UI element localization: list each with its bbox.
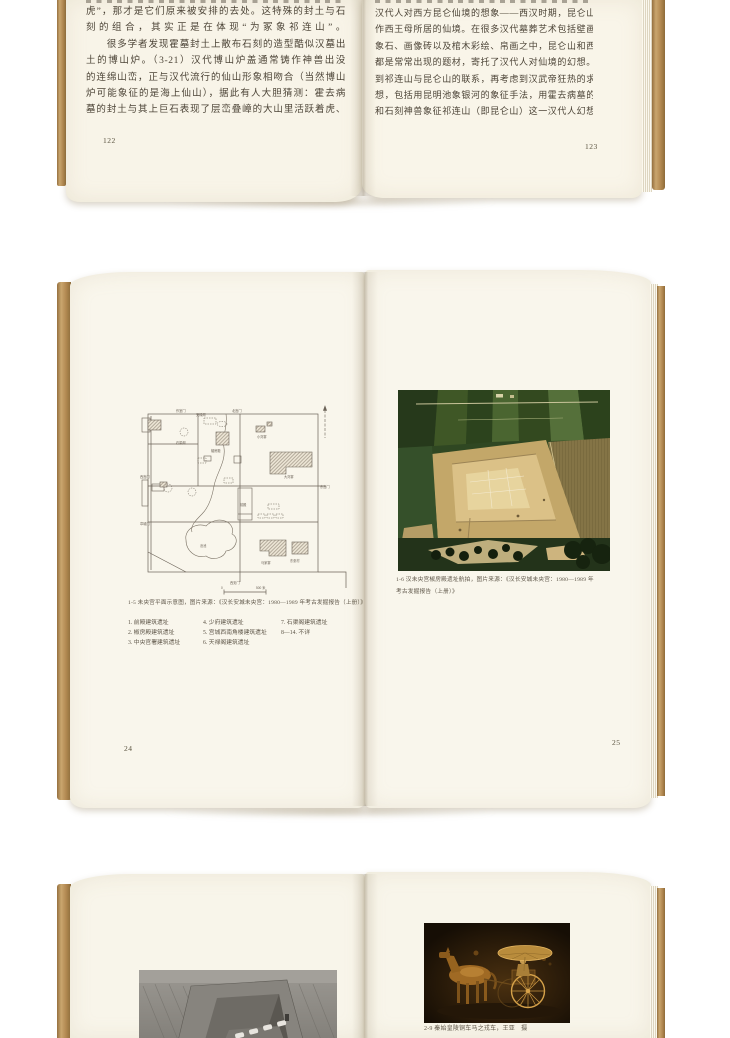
legend-item: 6. 天禄阁建筑遗址 bbox=[203, 638, 267, 648]
site-label: 椒房殿 bbox=[211, 448, 221, 453]
figure-caption-line2: 考古发掘报告（上册）》 bbox=[396, 587, 458, 598]
excavation-photo-figure bbox=[139, 970, 337, 1038]
text-line: 和石刻神兽象征祁连山（即昆仑山）这一汉代人幻想中的 bbox=[375, 103, 593, 119]
legend-item: 8—14. 不详 bbox=[281, 628, 327, 638]
legend-item: 2. 椒房殿建筑遗址 bbox=[128, 628, 180, 638]
text-line: 虎”，那才是它们原来被安排的去处。这特殊的封土与石 bbox=[86, 4, 346, 20]
legend-item: 7. 石渠阁建筑遗址 bbox=[281, 618, 327, 628]
gate-label: 作室门 bbox=[176, 408, 186, 413]
text-line: 的连绵山峦，正与汉代流行的仙山形象相吻合（当然博山 bbox=[86, 70, 346, 86]
page-bottom-right: 2-9 秦始皇陵铜车马之戎车，王亚 摄 bbox=[365, 872, 651, 1038]
page-24: 作室门 北宫门 西宫门 章城门 东宫门 西安门 石渠阁 天禄阁 椒房殿 小刘寨 … bbox=[70, 272, 365, 808]
ground bbox=[437, 1003, 561, 1019]
cover-edge-left bbox=[57, 0, 66, 186]
site-label: 前殿 bbox=[240, 502, 247, 507]
upper-fields bbox=[398, 390, 610, 448]
building-blocks bbox=[142, 418, 312, 556]
site-label: 石渠阁 bbox=[176, 440, 186, 445]
bottom-tree-row bbox=[398, 538, 610, 571]
site-label: 大刘寨 bbox=[284, 474, 294, 479]
figure-caption-line1: 1-6 汉未央宫椒房殿遗址航拍，图片来源：《汉长安城未央宫：1980—1989 … bbox=[396, 575, 594, 586]
text-line: 都是常常出现的题材，寄托了汉代人对仙境的幻想。考虑 bbox=[375, 54, 593, 70]
site-label: 天禄阁 bbox=[196, 412, 206, 417]
body-text-column: 虎”，那才是它们原来被安排的去处。这特殊的封土与石 刻的组合，其实正是在体现“为… bbox=[86, 4, 346, 119]
body-text-column: 汉代人对西方昆仑仙境的想象——西汉时期，昆仑山被看 作西王母所居的仙境。在很多汉… bbox=[375, 5, 593, 120]
aerial-photo-figure bbox=[398, 390, 610, 571]
book-spread-middle: 作室门 北宫门 西宫门 章城门 东宫门 西安门 石渠阁 天禄阁 椒房殿 小刘寨 … bbox=[0, 260, 730, 830]
cover-edge-right bbox=[657, 888, 665, 1038]
site-label: 东张村 bbox=[290, 558, 300, 563]
figure-caption: 2-9 秦始皇陵铜车马之戎车，王亚 摄 bbox=[424, 1024, 527, 1035]
left-field-strip bbox=[398, 446, 438, 542]
pit-rim bbox=[139, 970, 337, 983]
cover-edge-right bbox=[657, 286, 665, 796]
page-123: 汉代人对西方昆仑仙境的想象——西汉时期，昆仑山被看 作西王母所居的仙境。在很多汉… bbox=[362, 0, 642, 198]
text-line: 墓的封土与其上巨石表现了层峦叠嶂的大山里活跃着虎、 bbox=[86, 102, 346, 118]
text-line: 作西王母所居的仙境。在很多汉代墓葬艺术包括壁画、画 bbox=[375, 21, 593, 37]
legend-item: 4. 少府建筑遗址 bbox=[203, 618, 267, 628]
site-label: 沧池 bbox=[200, 543, 207, 548]
scale-value-label: 500 米 bbox=[256, 585, 266, 590]
gate-label: 西宫门 bbox=[140, 474, 150, 479]
book-spread-top: 虎”，那才是它们原来被安排的去处。这特殊的封土与石 刻的组合，其实正是在体现“为… bbox=[0, 0, 730, 240]
cropped-text-row bbox=[375, 0, 593, 3]
page-25: 1-6 汉未央宫椒房殿遗址航拍，图片来源：《汉长安城未央宫：1980—1989 … bbox=[365, 270, 651, 808]
page-number: 123 bbox=[585, 142, 598, 151]
scale-bar bbox=[224, 590, 266, 595]
text-line: 很多学者发现霍墓封土上散布石刻的造型酷似汉墓出 bbox=[86, 37, 346, 53]
book-spread-bottom: 2-9 秦始皇陵铜车马之戎车，王亚 摄 bbox=[0, 860, 730, 1038]
legend-item: 3. 中央官署建筑遗址 bbox=[128, 638, 180, 648]
page-bottom-left bbox=[70, 874, 365, 1038]
text-line: 到祁连山与昆仑山的联系，再考虑到汉武帝狂热的求仙思 bbox=[375, 71, 593, 87]
cropped-text-row bbox=[86, 0, 346, 3]
page-number: 122 bbox=[103, 136, 116, 145]
text-line: 土的博山炉。（3-21）汉代博山炉盖通常铸作神兽出没 bbox=[86, 53, 346, 69]
gate-label: 西安门 bbox=[230, 580, 240, 585]
text-line: 象石、画像砖以及棺木彩绘、帛画之中，昆仑山和西王母 bbox=[375, 38, 593, 54]
cover-edge-left bbox=[57, 884, 71, 1038]
page-number: 24 bbox=[124, 744, 133, 753]
text-line: 刻的组合，其实正是在体现“为冢象祁连山”。 bbox=[86, 20, 346, 36]
excavation-pit bbox=[175, 980, 307, 1038]
page-number: 25 bbox=[612, 738, 621, 747]
gate-label: 北宫门 bbox=[232, 408, 242, 413]
site-label: 马家寨 bbox=[261, 560, 271, 565]
gate-label: 东宫门 bbox=[320, 484, 330, 489]
gate-label: 章城门 bbox=[140, 521, 150, 526]
page-fore-edge bbox=[642, 0, 652, 192]
text-line: 想，包括用昆明池象银河的象征手法，用霍去病墓的冢山 bbox=[375, 87, 593, 103]
site-plan-figure: 作室门 北宫门 西宫门 章城门 东宫门 西安门 石渠阁 天禄阁 椒房殿 小刘寨 … bbox=[140, 392, 360, 602]
legend-item: 5. 宫城西南角楼建筑遗址 bbox=[203, 628, 267, 638]
figure-legend-column-3: 7. 石渠阁建筑遗址 8—14. 不详 bbox=[281, 618, 327, 638]
north-arrow-icon bbox=[323, 406, 326, 438]
cover-edge-left bbox=[57, 282, 71, 800]
figure-legend-column-2: 4. 少府建筑遗址 5. 宫城西南角楼建筑遗址 6. 天禄阁建筑遗址 bbox=[203, 618, 267, 648]
page-122: 虎”，那才是它们原来被安排的去处。这特殊的封土与石 刻的组合，其实正是在体现“为… bbox=[66, 0, 362, 202]
scale-zero-label: 0 bbox=[221, 586, 223, 590]
text-line: 炉可能象征的是海上仙山），据此有人大胆猜测：霍去病 bbox=[86, 86, 346, 102]
figure-legend-column-1: 1. 前殿建筑遗址 2. 椒房殿建筑遗址 3. 中央官署建筑遗址 bbox=[128, 618, 180, 648]
legend-item: 1. 前殿建筑遗址 bbox=[128, 618, 180, 628]
cover-edge-right bbox=[652, 0, 665, 190]
text-line: 汉代人对西方昆仑仙境的想象——西汉时期，昆仑山被看 bbox=[375, 5, 593, 21]
site-label: 小刘寨 bbox=[257, 434, 267, 439]
chariot-photo-figure bbox=[424, 923, 570, 1023]
figure-caption: 1-5 未央宫平面示意图，图片来源：《汉长安城未央宫：1980—1989 年考古… bbox=[128, 598, 365, 609]
